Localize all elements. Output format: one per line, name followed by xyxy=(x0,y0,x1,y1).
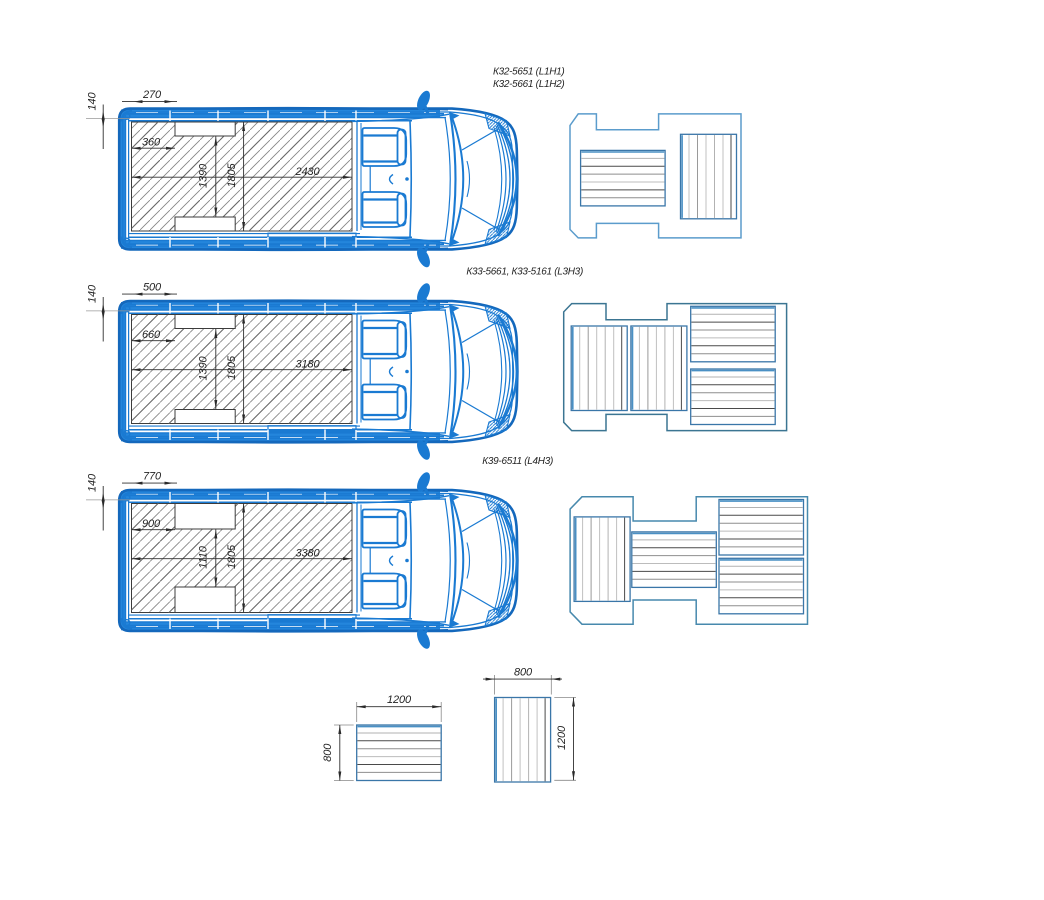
svg-text:140: 140 xyxy=(87,91,99,110)
svg-text:500: 500 xyxy=(143,282,162,294)
svg-text:1200: 1200 xyxy=(387,694,412,706)
svg-text:770: 770 xyxy=(143,471,162,483)
svg-text:1805: 1805 xyxy=(226,355,238,380)
svg-text:140: 140 xyxy=(87,473,99,492)
svg-text:660: 660 xyxy=(142,329,161,341)
svg-text:2430: 2430 xyxy=(294,166,320,178)
svg-text:К32-5661 (L1Н2): К32-5661 (L1Н2) xyxy=(493,79,564,90)
svg-text:1390: 1390 xyxy=(198,355,210,380)
svg-text:140: 140 xyxy=(87,284,99,303)
svg-text:К33-5661, К33-5161 (L3Н3): К33-5661, К33-5161 (L3Н3) xyxy=(466,266,583,277)
svg-text:3380: 3380 xyxy=(295,548,320,560)
svg-text:1110: 1110 xyxy=(198,545,210,568)
svg-text:К39-6511 (L4Н3): К39-6511 (L4Н3) xyxy=(482,456,553,467)
svg-text:1805: 1805 xyxy=(226,162,238,187)
svg-text:900: 900 xyxy=(142,518,161,530)
svg-text:800: 800 xyxy=(514,667,533,679)
svg-text:3180: 3180 xyxy=(295,359,320,371)
svg-text:360: 360 xyxy=(142,137,161,149)
svg-text:1200: 1200 xyxy=(556,725,568,750)
svg-text:1805: 1805 xyxy=(226,544,238,569)
svg-text:270: 270 xyxy=(142,89,162,101)
svg-text:К32-5651 (L1Н1): К32-5651 (L1Н1) xyxy=(493,67,564,78)
svg-text:800: 800 xyxy=(322,743,334,762)
svg-text:1390: 1390 xyxy=(198,163,210,188)
